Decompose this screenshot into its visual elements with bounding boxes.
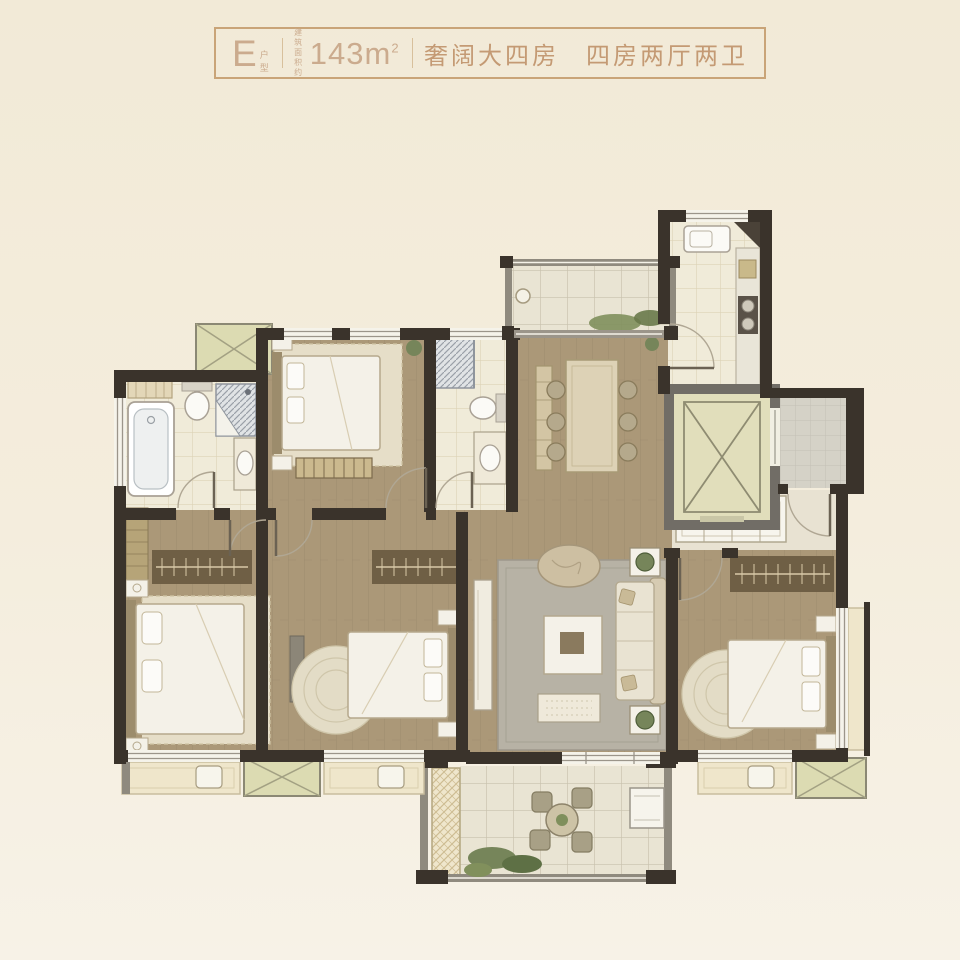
stove [738,296,758,334]
nightstand [816,734,836,749]
ac-platform-bottom-right [796,758,866,798]
shower [434,334,474,388]
entry-corridor-floor [778,392,848,488]
shower [216,384,256,436]
bed [126,600,244,738]
dining-table [566,360,618,472]
vase-plant [516,289,530,303]
balcony-slider [514,330,664,338]
living-room [474,545,666,750]
bay-window-east [848,602,870,756]
balcony-planter [432,768,460,876]
nightstand [126,580,148,597]
ottoman-pouf [538,545,600,587]
nightstand [816,616,836,632]
nightstand [438,610,458,625]
plant [406,340,422,356]
window-master-bay [128,750,240,762]
window-master-bath [114,398,126,486]
bay-window-master [122,762,240,794]
bed [728,636,836,732]
wardrobe [730,556,834,592]
bath-cabinet [128,380,172,398]
bed [272,352,380,454]
window-shared-bath [450,328,502,340]
balcony-plants [589,314,641,332]
kitchen-sink [684,226,730,252]
floor-plan [0,0,960,960]
bed [348,628,458,722]
window-right-bay [698,750,792,762]
sofa [616,578,666,704]
coffee-table [544,616,602,674]
elevator-shaft [664,384,780,530]
unit-label: 户型 [260,48,270,74]
window-living-slider [562,752,660,764]
bathtub [128,402,174,496]
cutting-board [739,260,756,278]
area-label: 建筑 面积约 [294,28,306,78]
window-middle-bay [324,750,424,762]
wardrobe [372,550,460,584]
window-east-bay [836,608,848,748]
tv-cabinet [474,580,492,710]
side-table-plant [630,548,660,576]
bay-window-right [698,762,792,794]
nightstand [272,456,292,470]
outdoor-ac-unit [630,788,664,828]
ac-platform-bottom-left [244,758,320,796]
north-bedroom [272,336,422,478]
bathroom-sink [474,432,506,484]
window-kitchen [686,210,748,222]
toilet [182,382,212,420]
area-value: 143m2 [310,38,400,69]
unit-letter: E [232,35,257,72]
plant [645,337,659,351]
storage-bench [538,694,600,722]
title-banner: E 户型 建筑 面积约 143m2 奢阔大四房 四房两厅两卫 [214,27,766,79]
side-table-plant [630,706,660,734]
bench [296,458,372,478]
bay-window-middle [324,762,424,794]
tagline: 奢阔大四房 四房两厅两卫 [424,36,748,71]
toilet [470,394,506,422]
bathroom-sink [234,438,256,490]
nightstand [438,722,458,737]
wardrobe [152,550,252,584]
